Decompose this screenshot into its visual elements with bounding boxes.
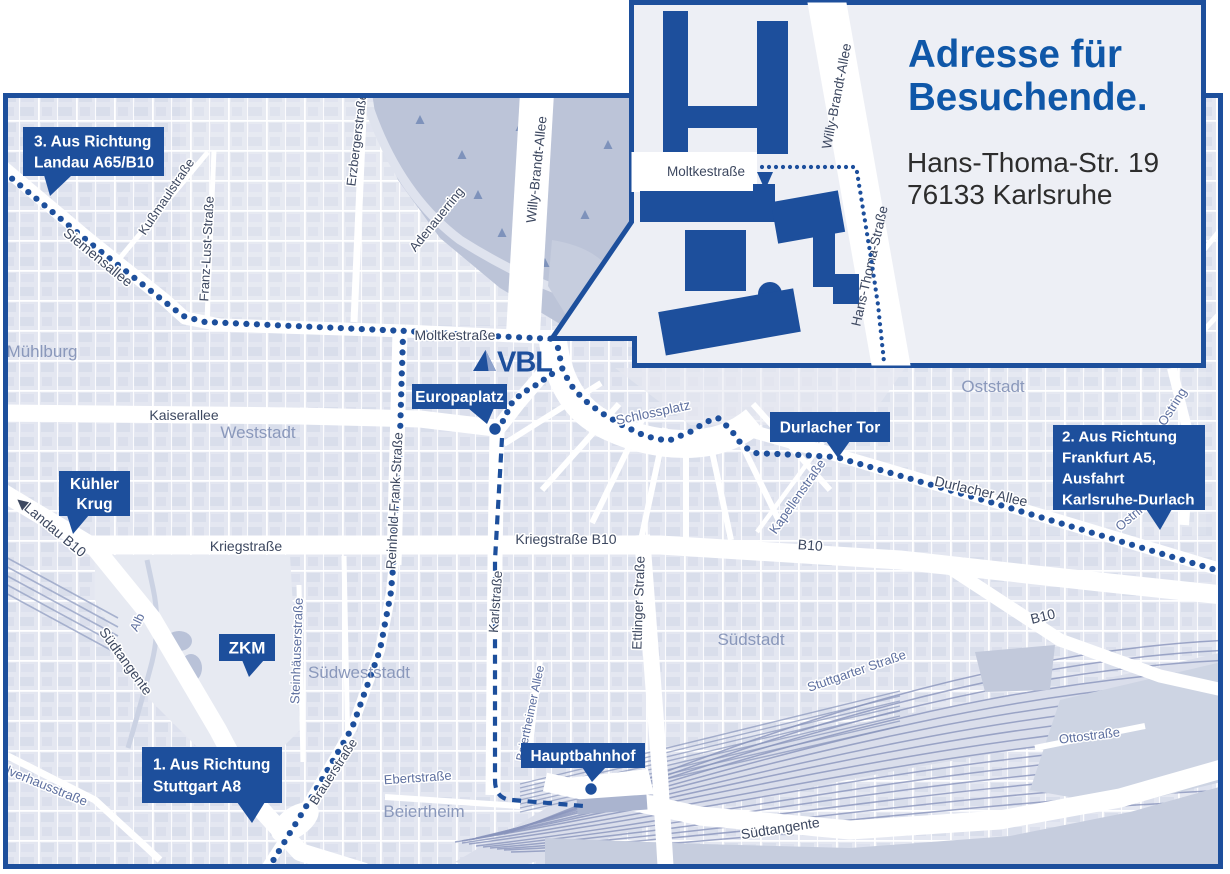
svg-text:3. Aus Richtung: 3. Aus Richtung <box>34 134 151 151</box>
svg-text:Landau A65/B10: Landau A65/B10 <box>34 155 154 172</box>
svg-text:Stuttgart A8: Stuttgart A8 <box>153 779 241 796</box>
svg-text:Kaiserallee: Kaiserallee <box>149 407 218 423</box>
svg-text:Kriegstraße B10: Kriegstraße B10 <box>515 531 616 547</box>
svg-text:ZKM: ZKM <box>229 639 266 658</box>
svg-text:Ausfahrt: Ausfahrt <box>1062 471 1124 488</box>
svg-text:Kriegstraße: Kriegstraße <box>210 538 283 554</box>
svg-text:Europaplatz: Europaplatz <box>415 389 504 406</box>
svg-text:Adresse für: Adresse für <box>908 33 1122 76</box>
svg-text:Mühlburg: Mühlburg <box>7 342 78 361</box>
svg-text:Karlsruhe-Durlach: Karlsruhe-Durlach <box>1062 492 1195 509</box>
svg-text:Hans-Thoma-Str. 19: Hans-Thoma-Str. 19 <box>907 147 1159 178</box>
svg-text:VBL: VBL <box>497 347 552 379</box>
svg-text:Oststadt: Oststadt <box>961 377 1025 396</box>
svg-text:Hauptbahnhof: Hauptbahnhof <box>530 748 636 765</box>
svg-text:Moltkestraße: Moltkestraße <box>415 327 496 343</box>
svg-text:Weststadt: Weststadt <box>220 423 296 442</box>
svg-text:Beiertheim: Beiertheim <box>383 802 464 821</box>
svg-text:1. Aus Richtung: 1. Aus Richtung <box>153 757 270 774</box>
svg-text:Frankfurt A5,: Frankfurt A5, <box>1062 450 1156 467</box>
svg-text:2. Aus Richtung: 2. Aus Richtung <box>1062 429 1177 446</box>
svg-text:Südstadt: Südstadt <box>717 630 784 649</box>
svg-text:B10: B10 <box>797 536 823 554</box>
svg-text:Besuchende.: Besuchende. <box>908 76 1148 119</box>
svg-text:Kühler: Kühler <box>70 476 119 493</box>
svg-text:Südweststadt: Südweststadt <box>308 663 410 682</box>
svg-text:Durlacher Tor: Durlacher Tor <box>780 420 881 437</box>
svg-text:Krug: Krug <box>76 496 112 513</box>
svg-text:Moltkestraße: Moltkestraße <box>667 164 745 179</box>
svg-text:76133 Karlsruhe: 76133 Karlsruhe <box>907 179 1112 210</box>
